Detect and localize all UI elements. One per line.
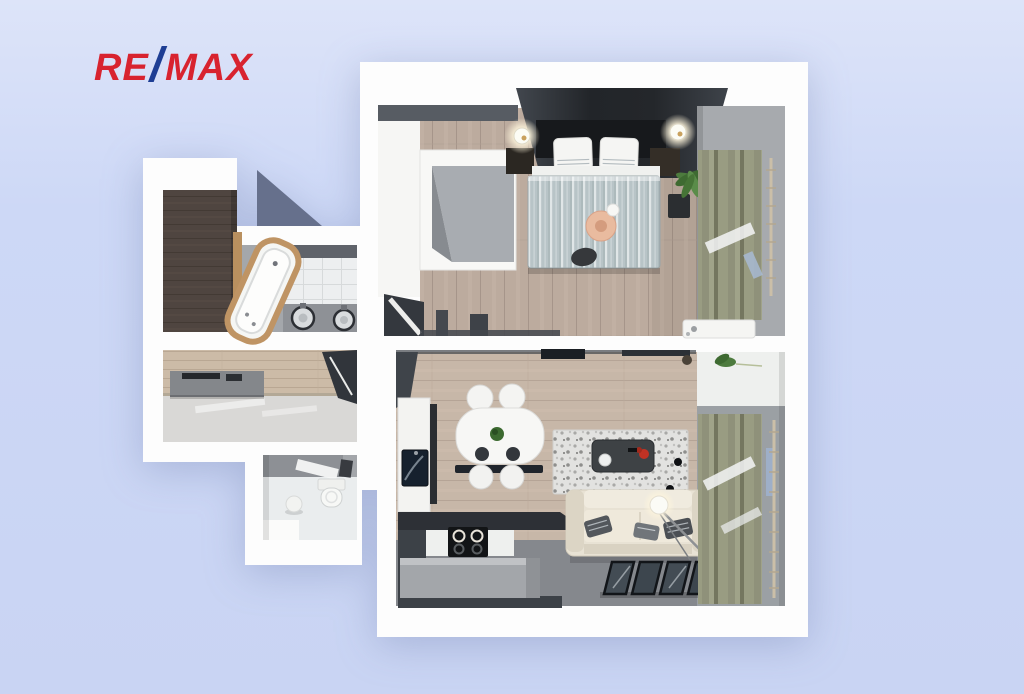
wall-vent: [622, 350, 690, 356]
bedroom: [378, 88, 785, 338]
wall-radiator: [541, 349, 585, 359]
dining-chair: [469, 465, 493, 489]
coffee-table: [592, 440, 654, 472]
wardrobe: [420, 150, 516, 270]
floor-plan-render: [0, 0, 1024, 694]
kitchen-counter: [398, 512, 586, 530]
hallway-console: [170, 371, 264, 399]
dining-chair: [500, 465, 524, 489]
bedroom-top-wall: [378, 105, 518, 121]
bed-tray: [607, 204, 619, 216]
wall-lamp-left: [504, 118, 540, 154]
living-room: [396, 349, 785, 608]
pillow-right: [599, 137, 638, 170]
living-wall-corner: [697, 352, 785, 408]
wall-lamp-right: [660, 114, 696, 150]
toilet: [318, 479, 345, 507]
sofa: [566, 490, 710, 563]
dining-bench: [455, 465, 543, 473]
cooktop: [448, 527, 488, 557]
wc: [263, 455, 357, 540]
dining-chair: [467, 385, 493, 411]
pillow-left: [553, 137, 592, 170]
window-bench: [683, 320, 755, 338]
kitchen-sink: [402, 450, 428, 486]
dining-chair: [499, 384, 525, 410]
apartment-plan: [143, 62, 808, 637]
screenshot-root: RE / MAX: [0, 0, 1024, 694]
kitchen-island: [400, 558, 540, 598]
wc-round-object: [285, 496, 303, 515]
exterior-wall-shadow: [257, 170, 322, 226]
hallway: [163, 350, 357, 442]
bathroom-dark-wood-wall: [163, 190, 237, 332]
